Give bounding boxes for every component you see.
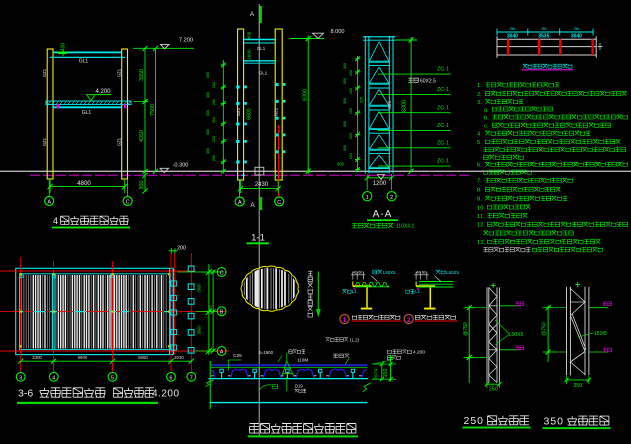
svg-text:A: A [47, 200, 51, 206]
svg-text:4800: 4800 [77, 180, 91, 187]
svg-text:2: 2 [390, 195, 393, 201]
svg-text:3900: 3900 [196, 325, 201, 335]
svg-text:10.: 10. [477, 205, 485, 211]
svg-text:ZC-1: ZC-1 [437, 159, 449, 165]
svg-text:GZ1: GZ1 [387, 100, 392, 109]
svg-text:40: 40 [353, 271, 357, 275]
svg-text:A: A [250, 202, 255, 209]
svg-text:5: 5 [111, 375, 114, 381]
svg-text:C: C [277, 200, 281, 206]
svg-text:300: 300 [206, 110, 210, 116]
svg-text:2.: 2. [477, 92, 482, 98]
svg-text:300: 300 [206, 148, 210, 154]
svg-text:3.: 3. [477, 100, 482, 106]
svg-text:B: B [220, 310, 224, 316]
svg-text:300: 300 [337, 162, 345, 167]
svg-text:1: 1 [366, 195, 369, 201]
svg-text:7.: 7. [477, 179, 482, 185]
svg-text:3: 3 [19, 375, 22, 381]
svg-text:7.200: 7.200 [179, 38, 193, 44]
svg-text:L1: L1 [352, 289, 357, 294]
svg-text:5850: 5850 [138, 355, 148, 360]
svg-text:ZC-1: ZC-1 [437, 140, 449, 146]
svg-text:200: 200 [212, 136, 216, 142]
svg-text:300: 300 [206, 129, 210, 135]
svg-text:9.: 9. [477, 197, 482, 203]
svg-text:150t5: 150t5 [594, 331, 607, 337]
svg-text:GZ1: GZ1 [42, 68, 47, 77]
svg-text:3040: 3040 [507, 34, 518, 40]
svg-text:250: 250 [464, 415, 485, 427]
svg-text:200: 200 [212, 117, 216, 123]
svg-text:GL1: GL1 [259, 71, 268, 76]
svg-text:b.: b. [484, 115, 489, 121]
svg-text:7500: 7500 [150, 104, 156, 116]
svg-text:ZC-1: ZC-1 [437, 123, 449, 129]
svg-text:GZ1: GZ1 [116, 68, 121, 77]
svg-text:250: 250 [541, 27, 547, 31]
svg-text:200: 200 [349, 108, 353, 114]
svg-text:2430: 2430 [255, 182, 269, 188]
svg-text:2030: 2030 [174, 355, 184, 360]
svg-text:1.: 1. [477, 83, 482, 89]
svg-text:3040: 3040 [571, 34, 582, 40]
svg-text:3900: 3900 [196, 283, 201, 293]
svg-text:60: 60 [422, 271, 426, 275]
svg-text:8.: 8. [477, 188, 482, 194]
svg-text:350: 350 [573, 383, 582, 389]
svg-text:8.000: 8.000 [331, 29, 345, 35]
svg-text:60X2.5: 60X2.5 [420, 78, 436, 84]
svg-text:4.: 4. [477, 132, 482, 138]
svg-text:1: 1 [343, 317, 347, 324]
svg-text:a.: a. [484, 107, 489, 113]
svg-text:c.: c. [484, 124, 489, 130]
svg-text:200: 200 [212, 82, 216, 88]
svg-text:13.: 13. [477, 240, 485, 246]
svg-text:GL1: GL1 [257, 46, 266, 51]
svg-text:6.: 6. [477, 163, 482, 169]
svg-text:4.200: 4.200 [413, 350, 425, 356]
svg-text:8300: 8300 [302, 89, 308, 101]
svg-text:6: 6 [170, 375, 173, 381]
svg-text:A: A [220, 350, 224, 356]
svg-text:1-1: 1-1 [251, 233, 265, 244]
svg-text:4.200: 4.200 [152, 388, 180, 399]
svg-text:3-6: 3-6 [18, 387, 33, 399]
svg-text:60: 60 [358, 271, 362, 275]
svg-text:3=1900: 3=1900 [259, 350, 274, 355]
svg-text:GL1: GL1 [79, 58, 89, 64]
svg-text:@750: @750 [542, 322, 548, 336]
svg-text:150: 150 [383, 369, 389, 378]
svg-text:300: 300 [206, 72, 210, 78]
svg-text:200: 200 [349, 133, 353, 139]
svg-text:3535: 3535 [538, 34, 549, 40]
svg-text:GZ1: GZ1 [273, 107, 278, 116]
svg-text:L1: L1 [415, 289, 420, 294]
svg-text:C: C [220, 271, 224, 277]
svg-text:L50X5: L50X5 [383, 270, 396, 275]
svg-text:300: 300 [343, 63, 347, 69]
svg-text:200: 200 [212, 155, 216, 161]
svg-text:300: 300 [343, 78, 347, 84]
svg-text:200: 200 [349, 153, 353, 159]
svg-text:C: C [126, 200, 130, 206]
svg-text:400: 400 [246, 31, 251, 39]
svg-text:ZC-1: ZC-1 [437, 67, 449, 73]
svg-text:1200: 1200 [373, 181, 387, 187]
svg-text:L50X5: L50X5 [509, 332, 524, 338]
svg-text:GZ1: GZ1 [236, 107, 241, 116]
svg-text:200: 200 [212, 99, 216, 105]
svg-text:@750: @750 [463, 322, 469, 336]
svg-text:GZ1: GZ1 [116, 137, 121, 146]
svg-text:110M: 110M [297, 357, 308, 362]
svg-text:C25: C25 [233, 353, 242, 359]
svg-text:40: 40 [416, 271, 420, 275]
svg-text:70/74: 70/74 [374, 368, 379, 379]
svg-text:1600: 1600 [246, 49, 251, 60]
svg-text:4: 4 [53, 216, 58, 226]
svg-text:5.: 5. [477, 140, 482, 146]
svg-text:-0.300: -0.300 [173, 163, 189, 169]
svg-text:5900: 5900 [78, 355, 88, 360]
svg-text:110X4.1: 110X4.1 [396, 224, 414, 230]
svg-text:GL1: GL1 [82, 110, 92, 116]
svg-text:ZC-1: ZC-1 [437, 87, 449, 93]
svg-text:350: 350 [544, 415, 565, 427]
svg-text:A: A [238, 200, 242, 206]
svg-text:450: 450 [208, 305, 213, 312]
svg-text:300: 300 [343, 98, 347, 104]
svg-text:ZC-1: ZC-1 [437, 105, 449, 111]
svg-text:12.: 12. [477, 223, 485, 229]
svg-text:200: 200 [177, 245, 186, 251]
svg-text:300: 300 [343, 145, 347, 151]
svg-text:250: 250 [510, 27, 516, 31]
svg-text:200: 200 [349, 70, 353, 76]
svg-text:D19: D19 [295, 383, 303, 388]
svg-text:200: 200 [349, 88, 353, 94]
svg-text:L50X5: L50X5 [446, 270, 459, 275]
svg-text:11.: 11. [477, 214, 485, 220]
svg-text:6600: 6600 [246, 108, 252, 120]
svg-text:(1.2): (1.2) [350, 337, 360, 342]
svg-text:3300: 3300 [32, 355, 42, 360]
svg-text:8300: 8300 [401, 100, 407, 112]
svg-text:GZ1: GZ1 [42, 137, 47, 146]
svg-text:A: A [250, 11, 255, 18]
svg-text:7: 7 [190, 375, 193, 381]
svg-text:2: 2 [407, 317, 411, 324]
svg-text:300: 300 [206, 92, 210, 98]
svg-text:400: 400 [61, 43, 67, 52]
svg-text:300: 300 [139, 181, 145, 190]
svg-text:250: 250 [574, 27, 580, 31]
svg-text:325: 325 [360, 97, 364, 103]
svg-text:250: 250 [489, 387, 498, 393]
svg-text:3950: 3950 [139, 69, 145, 81]
svg-text:300: 300 [343, 121, 347, 127]
svg-text:A-A: A-A [373, 209, 393, 220]
svg-text:4350: 4350 [139, 130, 145, 142]
svg-text:4: 4 [52, 375, 55, 381]
